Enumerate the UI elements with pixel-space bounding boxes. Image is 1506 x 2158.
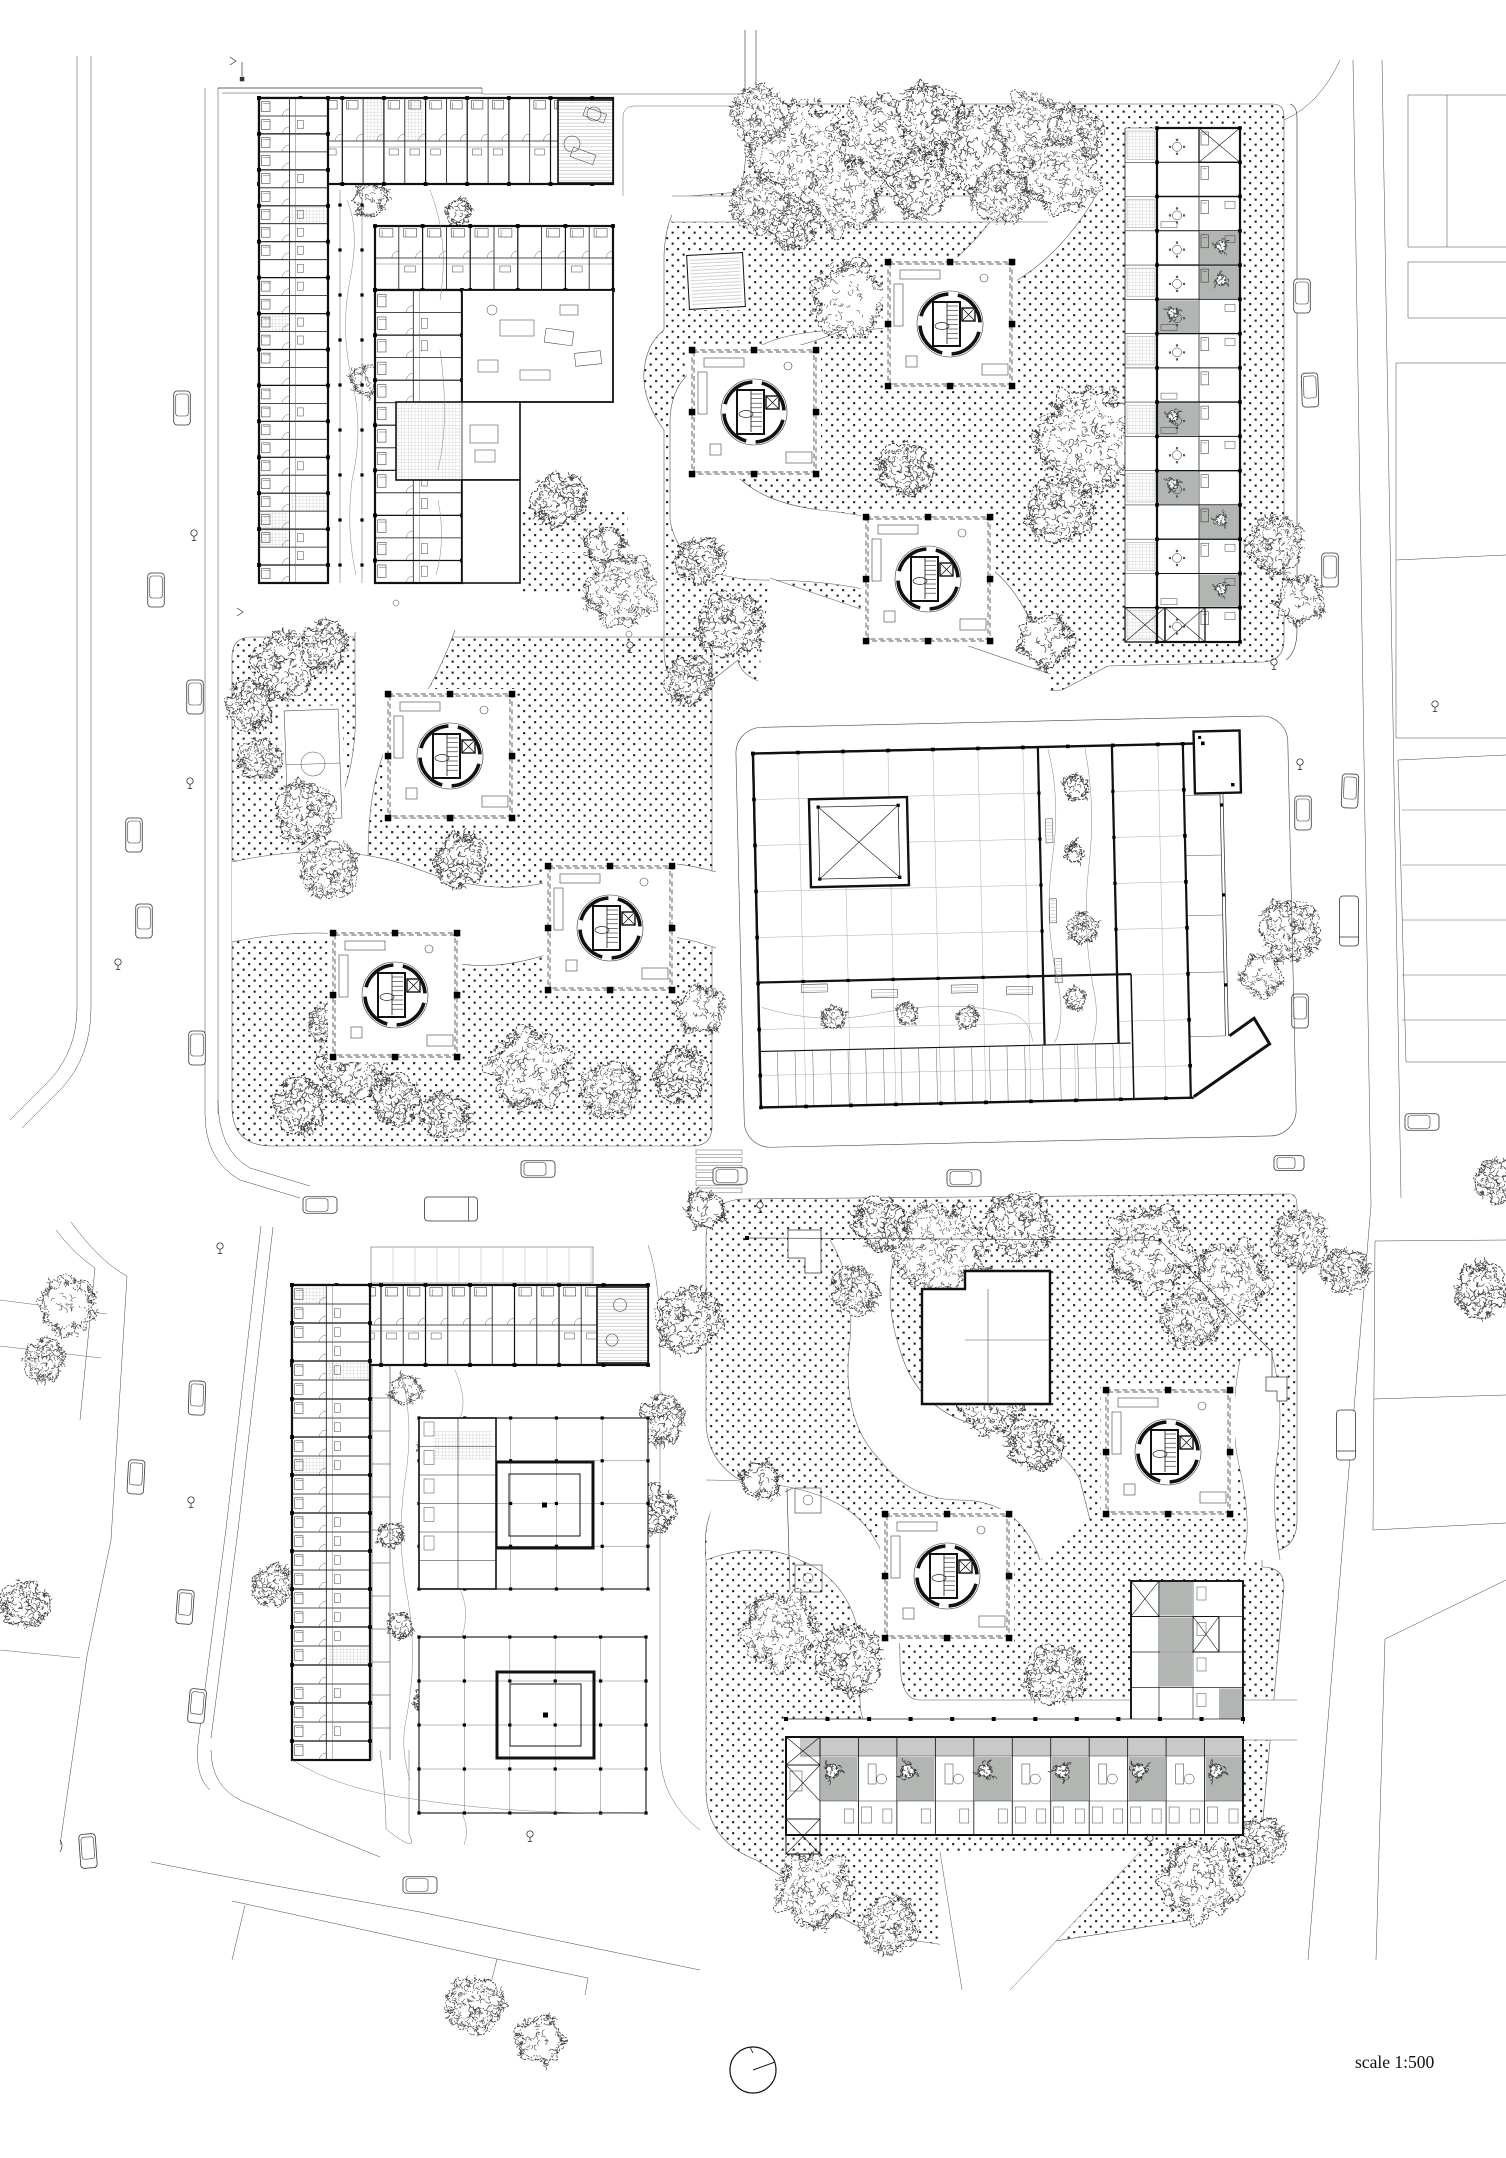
svg-text:scale 1:500: scale 1:500 <box>1355 2052 1434 2072</box>
